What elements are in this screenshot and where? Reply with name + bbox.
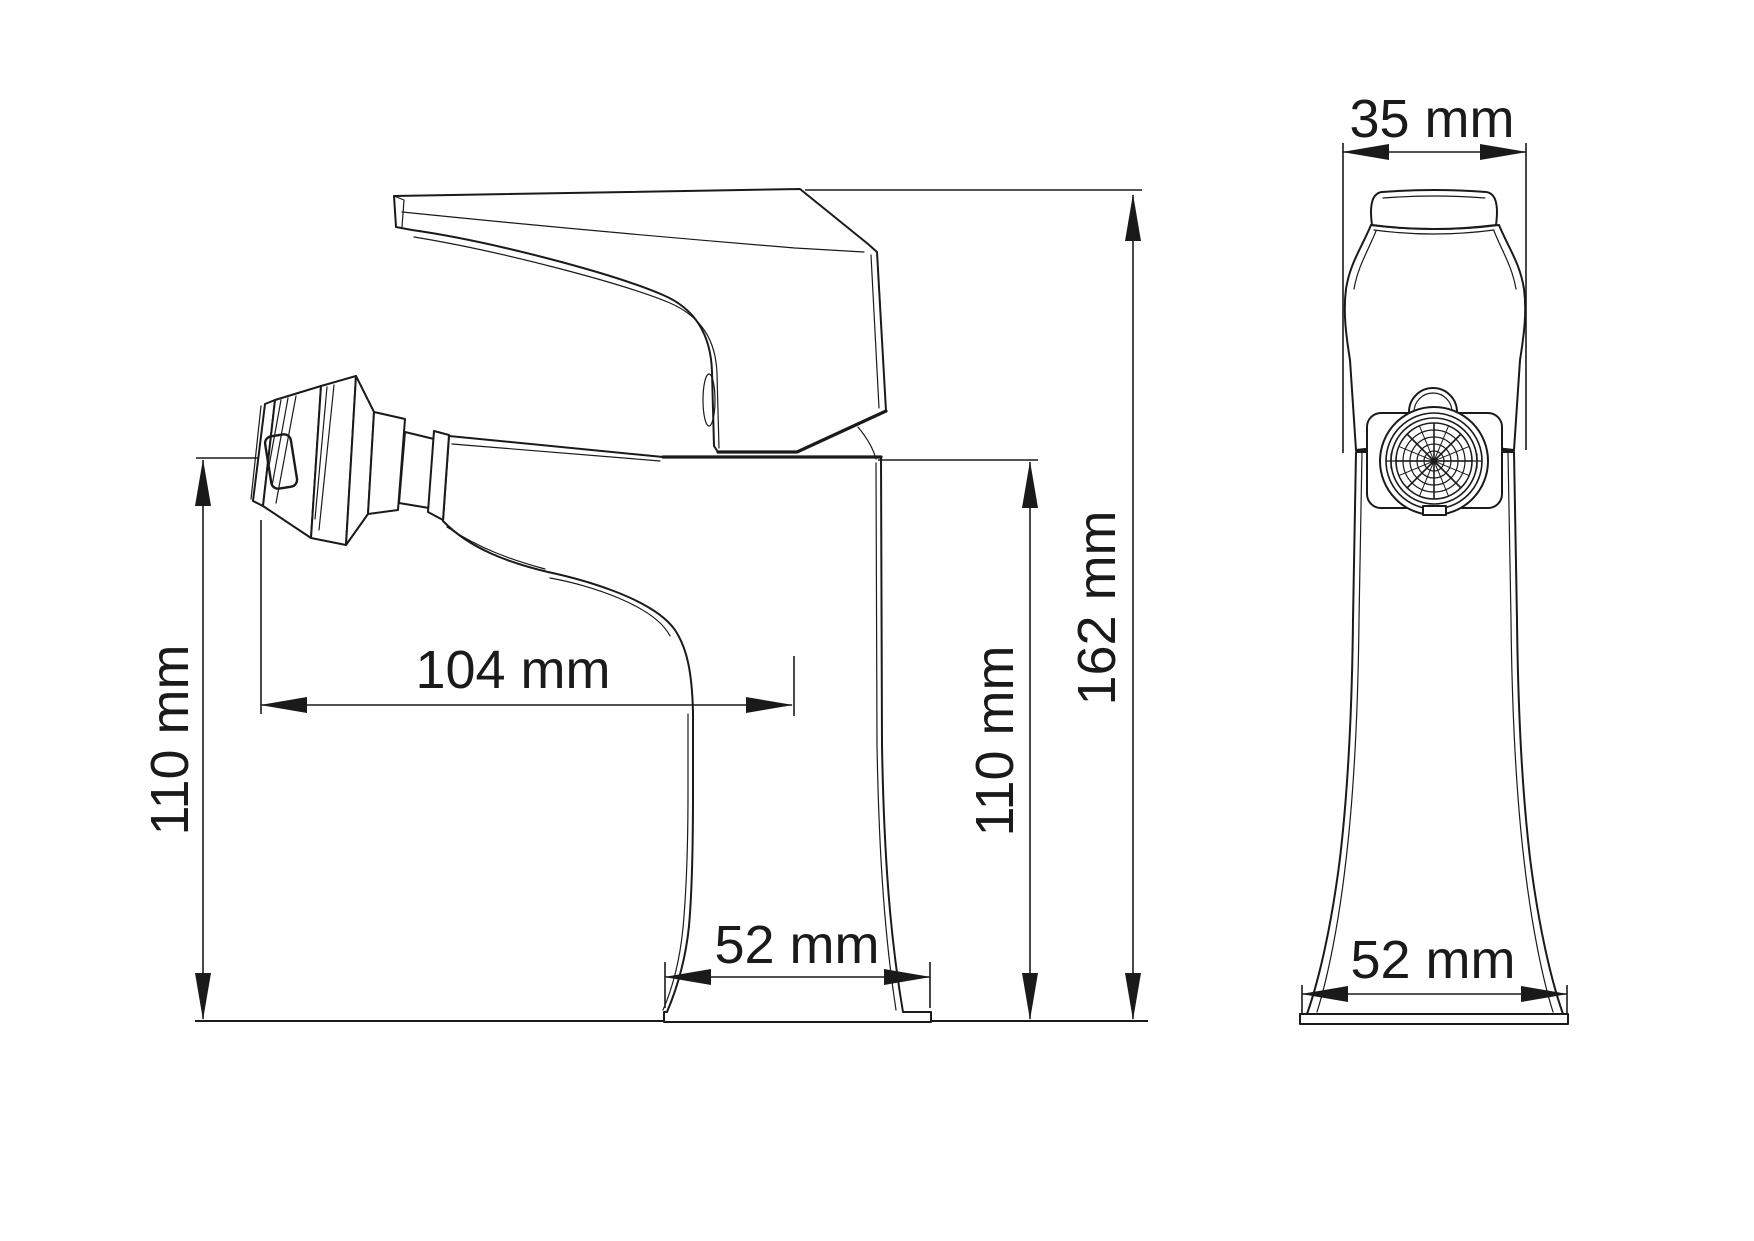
dim-label-spout-height: 110 mm bbox=[140, 644, 200, 835]
technical-drawing-page: 162 mm 110 mm 110 mm 104 mm 52 mm bbox=[0, 0, 1754, 1241]
aerator-bottom-tab bbox=[1423, 506, 1446, 515]
dim-label-total-height: 162 mm bbox=[1067, 510, 1127, 705]
spout-aerator-side bbox=[251, 376, 449, 545]
dim-label-handle-width: 35 mm bbox=[1349, 89, 1514, 149]
handle-side bbox=[394, 189, 886, 459]
dim-label-body-height: 110 mm bbox=[965, 645, 1025, 836]
dim-spout-height: 110 mm bbox=[140, 458, 258, 1020]
dim-label-spout-reach: 104 mm bbox=[415, 640, 610, 700]
dim-body-height: 110 mm bbox=[878, 460, 1038, 1020]
side-view bbox=[251, 189, 931, 1022]
dim-label-base-width-front: 52 mm bbox=[1350, 930, 1515, 990]
front-view bbox=[1300, 190, 1568, 1024]
base-plate-front bbox=[1300, 1014, 1568, 1024]
dim-label-base-width-side: 52 mm bbox=[714, 915, 879, 975]
faucet-dimension-drawing: 162 mm 110 mm 110 mm 104 mm 52 mm bbox=[0, 0, 1754, 1241]
